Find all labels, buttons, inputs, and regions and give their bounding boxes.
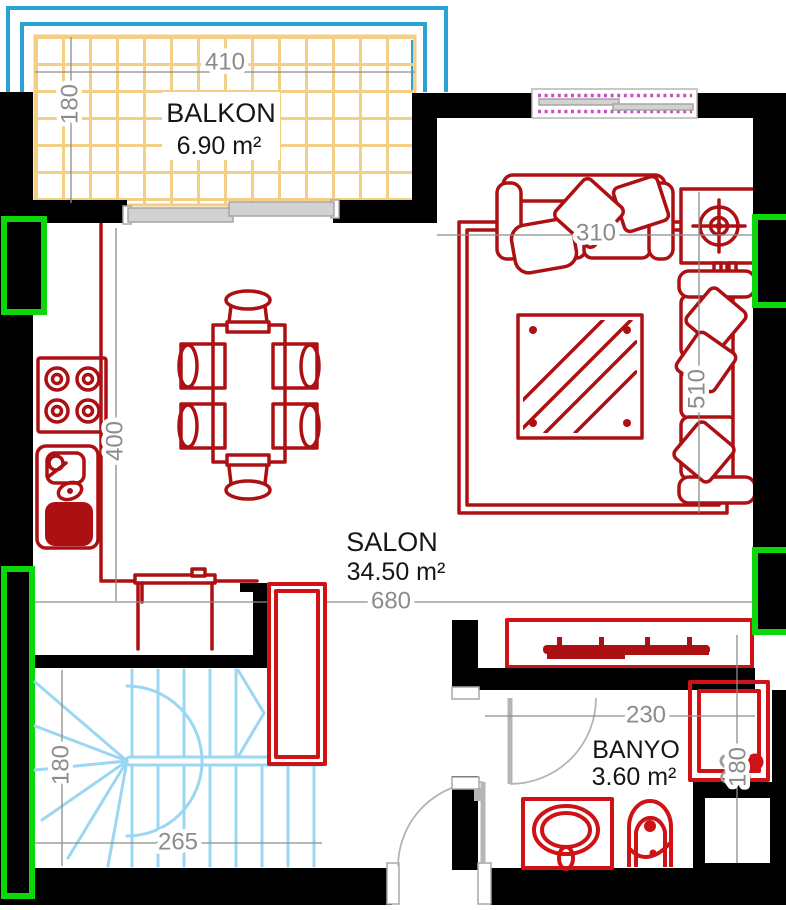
banyo-label: BANYO [592,736,680,764]
window-right-top [755,217,786,305]
wardrobe [269,584,325,764]
kitchen-counter-line [101,224,257,581]
balkon-area: 6.90 m² [177,132,262,160]
dim-banyo-depth: 180 [725,747,752,787]
coffee-table [518,315,642,438]
dim-banyo-width: 230 [626,702,666,729]
stove [38,358,106,432]
tv-unit [507,620,752,667]
console-table [135,569,215,649]
dim-balkon-width: 410 [205,49,245,76]
bathroom-door [452,687,596,789]
window-right-bottom [755,550,786,632]
washbasin [523,799,612,869]
dim-sofa-length: 510 [684,369,711,409]
window-top-sliding [532,89,697,118]
dim-sofa-wall: 310 [576,220,616,247]
dim-salon-width: 680 [371,588,411,615]
dim-kitchen-wall: 400 [102,421,129,461]
dim-stairs-depth: 180 [48,745,75,785]
salon-label: SALON [346,527,438,557]
kitchen-sink [37,446,98,548]
dim-balkon-depth: 180 [57,84,84,124]
window-left-bottom [4,569,32,896]
toilet [629,801,671,867]
dining-set [179,291,319,499]
floor-plan: BALKON 6.90 m² SALON 34.50 m² BANYO 3.60… [0,0,786,905]
window-left-top [4,219,44,312]
balkon-label: BALKON [166,98,276,128]
side-table-lamp [681,189,757,275]
dim-stairs-width: 265 [158,829,198,856]
salon-area: 34.50 m² [347,558,446,586]
banyo-area: 3.60 m² [592,763,677,791]
